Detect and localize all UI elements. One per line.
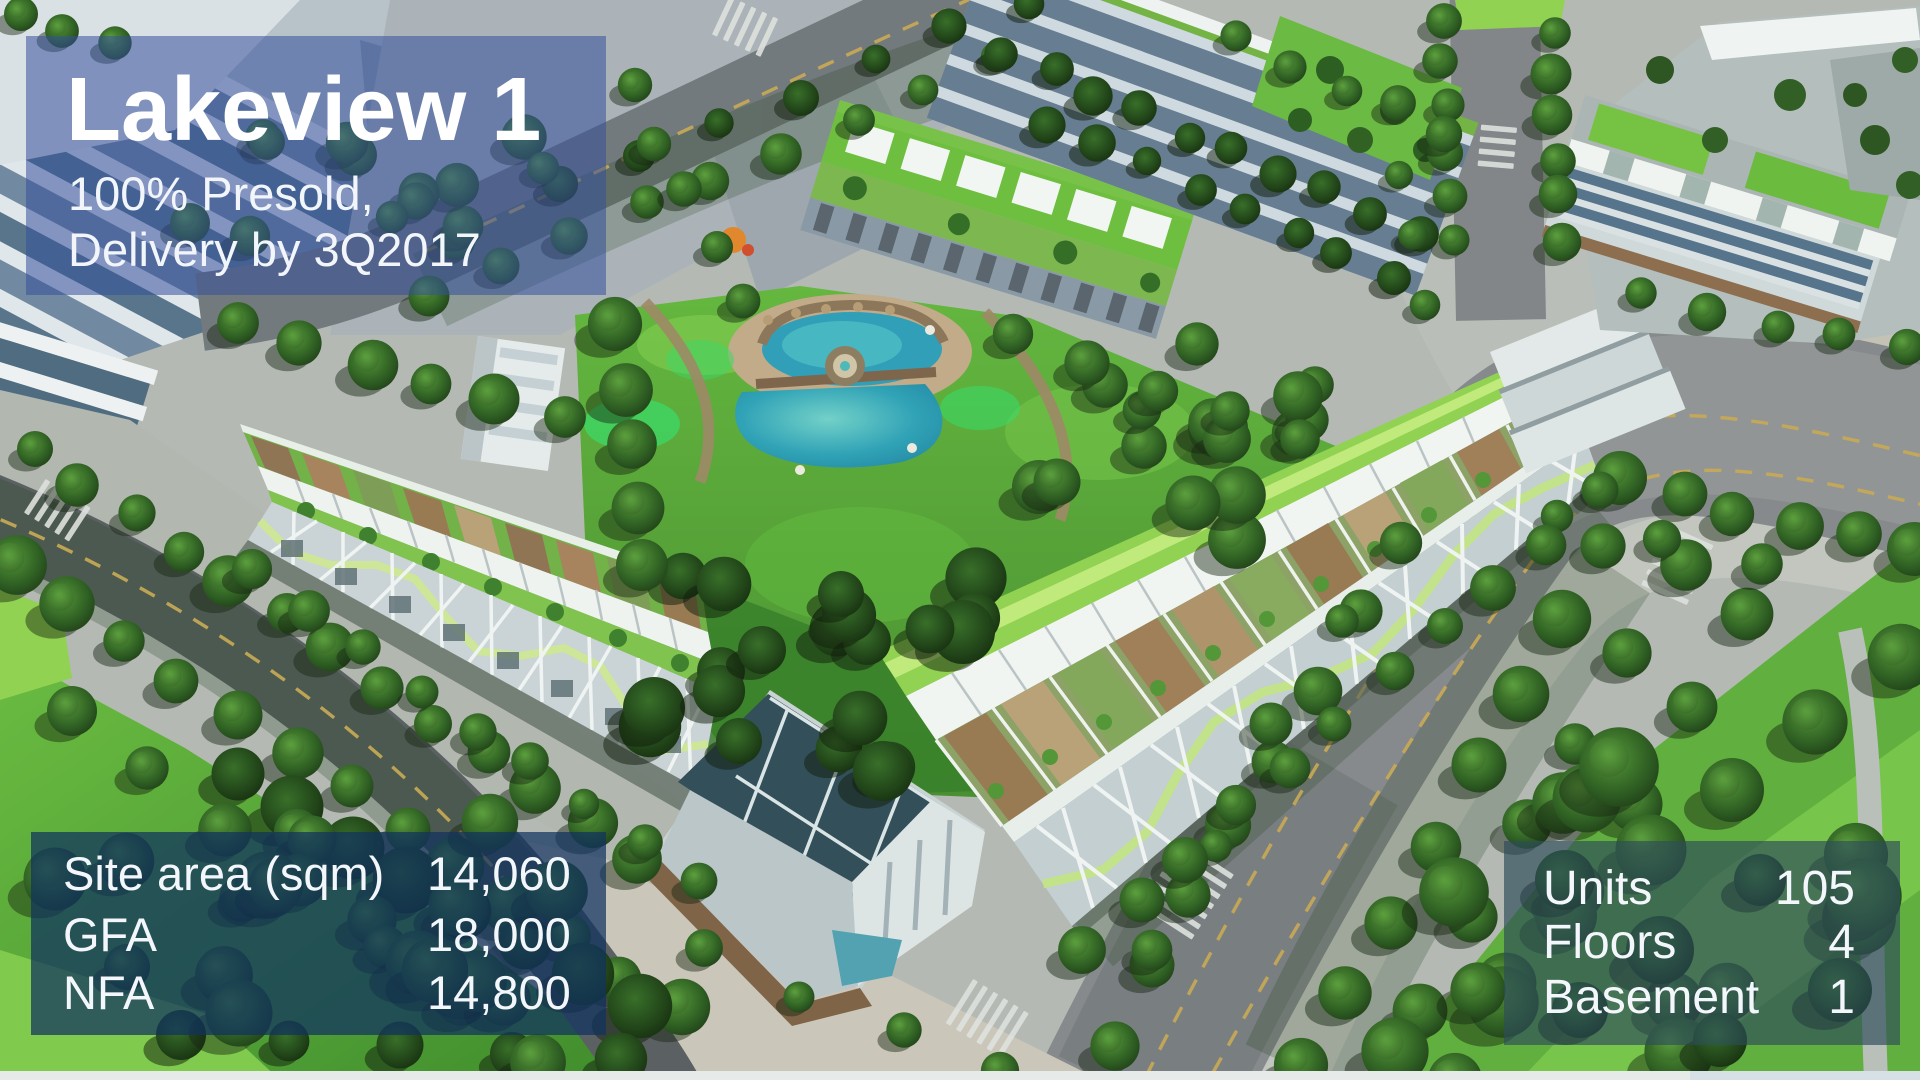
svg-text:18,000: 18,000	[427, 908, 571, 961]
svg-text:105: 105	[1775, 862, 1855, 915]
svg-text:Delivery by 3Q2017: Delivery by 3Q2017	[68, 223, 481, 276]
svg-text:Site area (sqm): Site area (sqm)	[63, 847, 384, 900]
svg-text:1: 1	[1828, 971, 1855, 1024]
svg-text:Floors: Floors	[1543, 916, 1676, 969]
svg-text:NFA: NFA	[63, 966, 155, 1019]
svg-text:14,800: 14,800	[427, 966, 571, 1019]
svg-text:4: 4	[1828, 916, 1855, 969]
svg-text:Units: Units	[1543, 862, 1652, 915]
svg-text:Lakeview 1: Lakeview 1	[66, 60, 541, 160]
svg-text:Basement: Basement	[1543, 971, 1759, 1024]
svg-text:GFA: GFA	[63, 908, 158, 961]
svg-text:100% Presold,: 100% Presold,	[68, 167, 374, 220]
svg-text:14,060: 14,060	[427, 847, 571, 900]
